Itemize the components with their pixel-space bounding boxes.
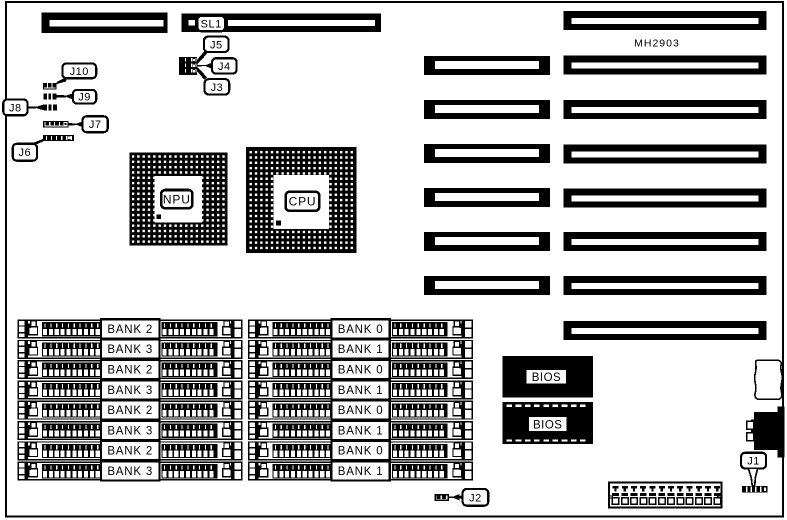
svg-text:J3: J3	[211, 82, 224, 94]
svg-text:J6: J6	[19, 147, 32, 159]
svg-text:CPU: CPU	[289, 195, 317, 209]
svg-text:BANK 0: BANK 0	[338, 365, 384, 377]
svg-text:BANK 1: BANK 1	[338, 466, 384, 478]
svg-text:BANK 1: BANK 1	[338, 425, 384, 437]
svg-text:BANK 2: BANK 2	[107, 446, 153, 458]
svg-text:BIOS: BIOS	[532, 372, 561, 384]
svg-text:J7: J7	[89, 119, 102, 131]
svg-text:BANK 3: BANK 3	[107, 466, 153, 478]
svg-text:SL1: SL1	[201, 19, 222, 31]
svg-text:BANK 2: BANK 2	[107, 405, 153, 417]
svg-text:BANK 3: BANK 3	[107, 425, 153, 437]
svg-text:BANK 0: BANK 0	[338, 324, 384, 336]
svg-text:J9: J9	[78, 92, 91, 104]
svg-text:BANK 1: BANK 1	[338, 344, 384, 356]
svg-text:J1: J1	[747, 456, 760, 468]
svg-text:MH2903: MH2903	[634, 38, 680, 50]
svg-text:BANK 3: BANK 3	[107, 344, 153, 356]
svg-text:J8: J8	[9, 102, 22, 114]
svg-text:NPU: NPU	[163, 192, 191, 206]
svg-text:BANK 0: BANK 0	[338, 405, 384, 417]
svg-text:BANK 2: BANK 2	[107, 365, 153, 377]
svg-text:J2: J2	[469, 492, 482, 504]
svg-text:BIOS: BIOS	[533, 420, 562, 432]
svg-text:BANK 0: BANK 0	[338, 446, 384, 458]
svg-text:BANK 3: BANK 3	[107, 385, 153, 397]
svg-text:BANK 2: BANK 2	[107, 324, 153, 336]
svg-text:J4: J4	[218, 61, 231, 73]
svg-text:J10: J10	[70, 66, 89, 78]
svg-text:J5: J5	[210, 39, 223, 51]
svg-text:BANK 1: BANK 1	[338, 385, 384, 397]
